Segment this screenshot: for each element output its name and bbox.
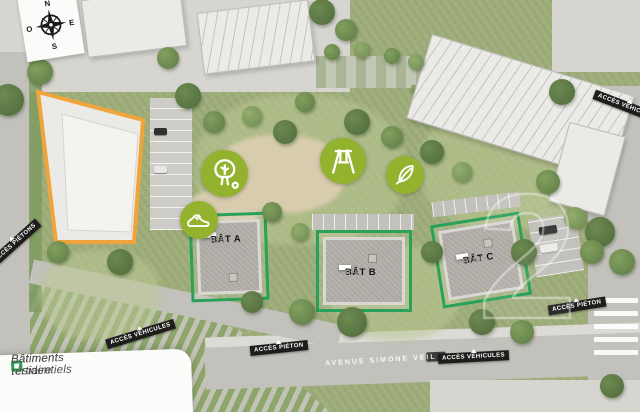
rooftop-unit (368, 254, 377, 263)
tree (337, 307, 367, 337)
rooftop-unit (229, 273, 238, 282)
tree (536, 170, 560, 194)
tree (564, 207, 586, 229)
tree (452, 162, 472, 182)
tree-icon[interactable] (201, 150, 248, 197)
tree (335, 19, 357, 41)
tree (262, 202, 282, 222)
tree (609, 249, 635, 275)
pavement-top-right (552, 0, 640, 72)
bat-c-label: BÂT C R+10 (456, 253, 469, 260)
parking-b (312, 214, 414, 230)
tree (469, 309, 495, 335)
tree (295, 92, 315, 112)
tree (289, 299, 315, 325)
bat-b-label: BÂT B R+9 (339, 265, 351, 270)
compass-e: E (68, 18, 75, 28)
compass-rose: N E S O (21, 0, 80, 54)
tree (241, 291, 263, 313)
tree (421, 241, 443, 263)
site-plan: BÂT A R+5 BÂT B R+9 BÂT C R+10 ACC (0, 0, 640, 412)
compass-s: S (51, 42, 58, 52)
tree (511, 239, 537, 265)
rooftop-unit (483, 238, 493, 248)
building-bat-b[interactable]: BÂT B R+9 (316, 230, 412, 312)
building-tertiary[interactable] (28, 82, 156, 252)
tree (510, 320, 534, 344)
tree (242, 106, 262, 126)
legend: Bâtiment tertiaire Bâtiments résidentiel… (0, 349, 193, 412)
bat-b-floors: R+9 (345, 268, 359, 277)
tree (203, 111, 225, 133)
lawn-patch (40, 250, 160, 340)
legend-residential-label: Bâtiments résidentiels (11, 352, 72, 378)
tree (157, 47, 179, 69)
swing-icon[interactable] (320, 138, 366, 184)
tree (549, 79, 575, 105)
compass-o: O (26, 24, 33, 34)
tree (291, 223, 309, 241)
tree (175, 83, 201, 109)
tree (354, 42, 370, 58)
tree (384, 48, 400, 64)
tree (381, 126, 403, 148)
tree (580, 240, 604, 264)
tree (600, 374, 624, 398)
bat-a-floors: R+5 (210, 235, 224, 244)
tree (107, 249, 133, 275)
tree (273, 120, 297, 144)
tree (47, 241, 69, 263)
tree (324, 44, 340, 60)
compass-card: N E S O (17, 0, 85, 62)
running-shoe-icon[interactable] (180, 201, 218, 239)
compass-n: N (44, 0, 51, 8)
tree (420, 140, 444, 164)
tree (344, 109, 370, 135)
tree (408, 54, 424, 70)
leaf-icon[interactable] (386, 156, 424, 194)
tree (27, 59, 53, 85)
tree (309, 0, 335, 25)
